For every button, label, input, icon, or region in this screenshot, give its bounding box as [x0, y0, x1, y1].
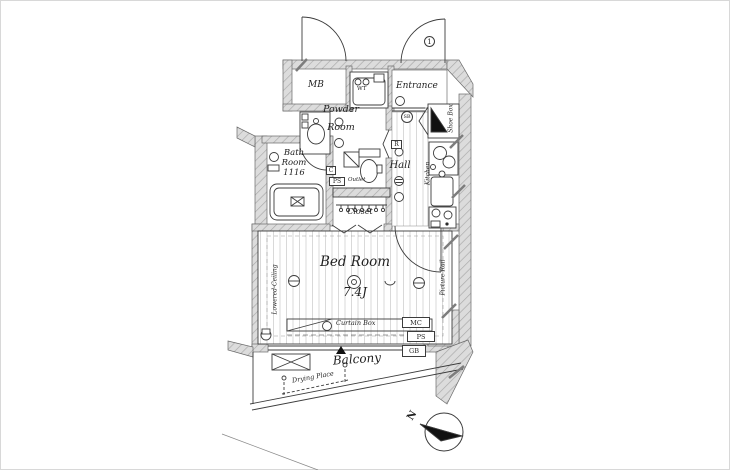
entrance-door — [401, 19, 445, 63]
kitchen-sink — [431, 171, 453, 206]
washer-tray-label: WT — [357, 86, 366, 92]
outlet-symbol — [385, 281, 395, 285]
room-label-bath: Bath Room 1116 — [267, 149, 321, 178]
bath-size: 1116 — [267, 169, 321, 179]
washer-tray — [350, 72, 388, 108]
floorplan-page: MB Entrance 1 Powder Room WT SB Bath Roo… — [0, 0, 730, 470]
picture-rail-label: Picture Rail — [441, 242, 448, 312]
room-label-hall: Hall — [385, 160, 415, 172]
room-label-bedroom: Bed Room — [305, 255, 405, 271]
ps-box-lower: PS — [407, 331, 435, 342]
downlight — [323, 322, 332, 331]
bathtub — [270, 184, 323, 220]
wall-light — [414, 278, 425, 289]
compass — [420, 413, 463, 451]
gb-box: GB — [402, 345, 426, 357]
lowered-ceiling-label: Lowered-Ceiling — [273, 244, 280, 334]
room-label-closet: Closet — [332, 207, 388, 216]
room-label-powder: Powder Room — [316, 105, 366, 134]
curtain-box-label: Curtain Box — [336, 320, 375, 327]
ps-box-upper: PS — [329, 177, 345, 186]
outlet-label: Outlet — [348, 177, 366, 183]
water-heater — [429, 207, 456, 228]
downlight — [395, 148, 403, 156]
site-boundary-line — [222, 434, 318, 470]
powder-line1: Powder — [316, 105, 366, 116]
floorplan-drawing — [0, 0, 730, 470]
corner-lamp — [261, 329, 271, 340]
bedroom-size-label: 7.4J — [305, 286, 405, 300]
r-box: R — [391, 140, 402, 149]
vent-light — [395, 177, 404, 186]
room-label-entrance: Entrance — [396, 81, 438, 91]
powder-folding-door — [383, 130, 389, 158]
unit-number-badge: 1 — [424, 36, 435, 47]
mb-door — [302, 17, 346, 61]
powder-line2: Room — [316, 123, 366, 134]
ac-unit — [272, 354, 310, 370]
wall-light — [289, 276, 300, 287]
downlight — [396, 97, 405, 106]
corner-shelf — [344, 152, 359, 167]
downlight — [395, 193, 404, 202]
shoe-box-label: Shoe Box — [449, 98, 456, 138]
kitchen-label: Kitchen — [426, 151, 433, 195]
downlight — [335, 139, 344, 148]
c-box: C — [326, 166, 336, 175]
switch-box-label: SB — [401, 111, 413, 123]
balcony-window — [268, 346, 424, 350]
room-label-mb: MB — [308, 80, 336, 90]
stove — [429, 142, 458, 175]
mc-box: MC — [402, 317, 430, 328]
